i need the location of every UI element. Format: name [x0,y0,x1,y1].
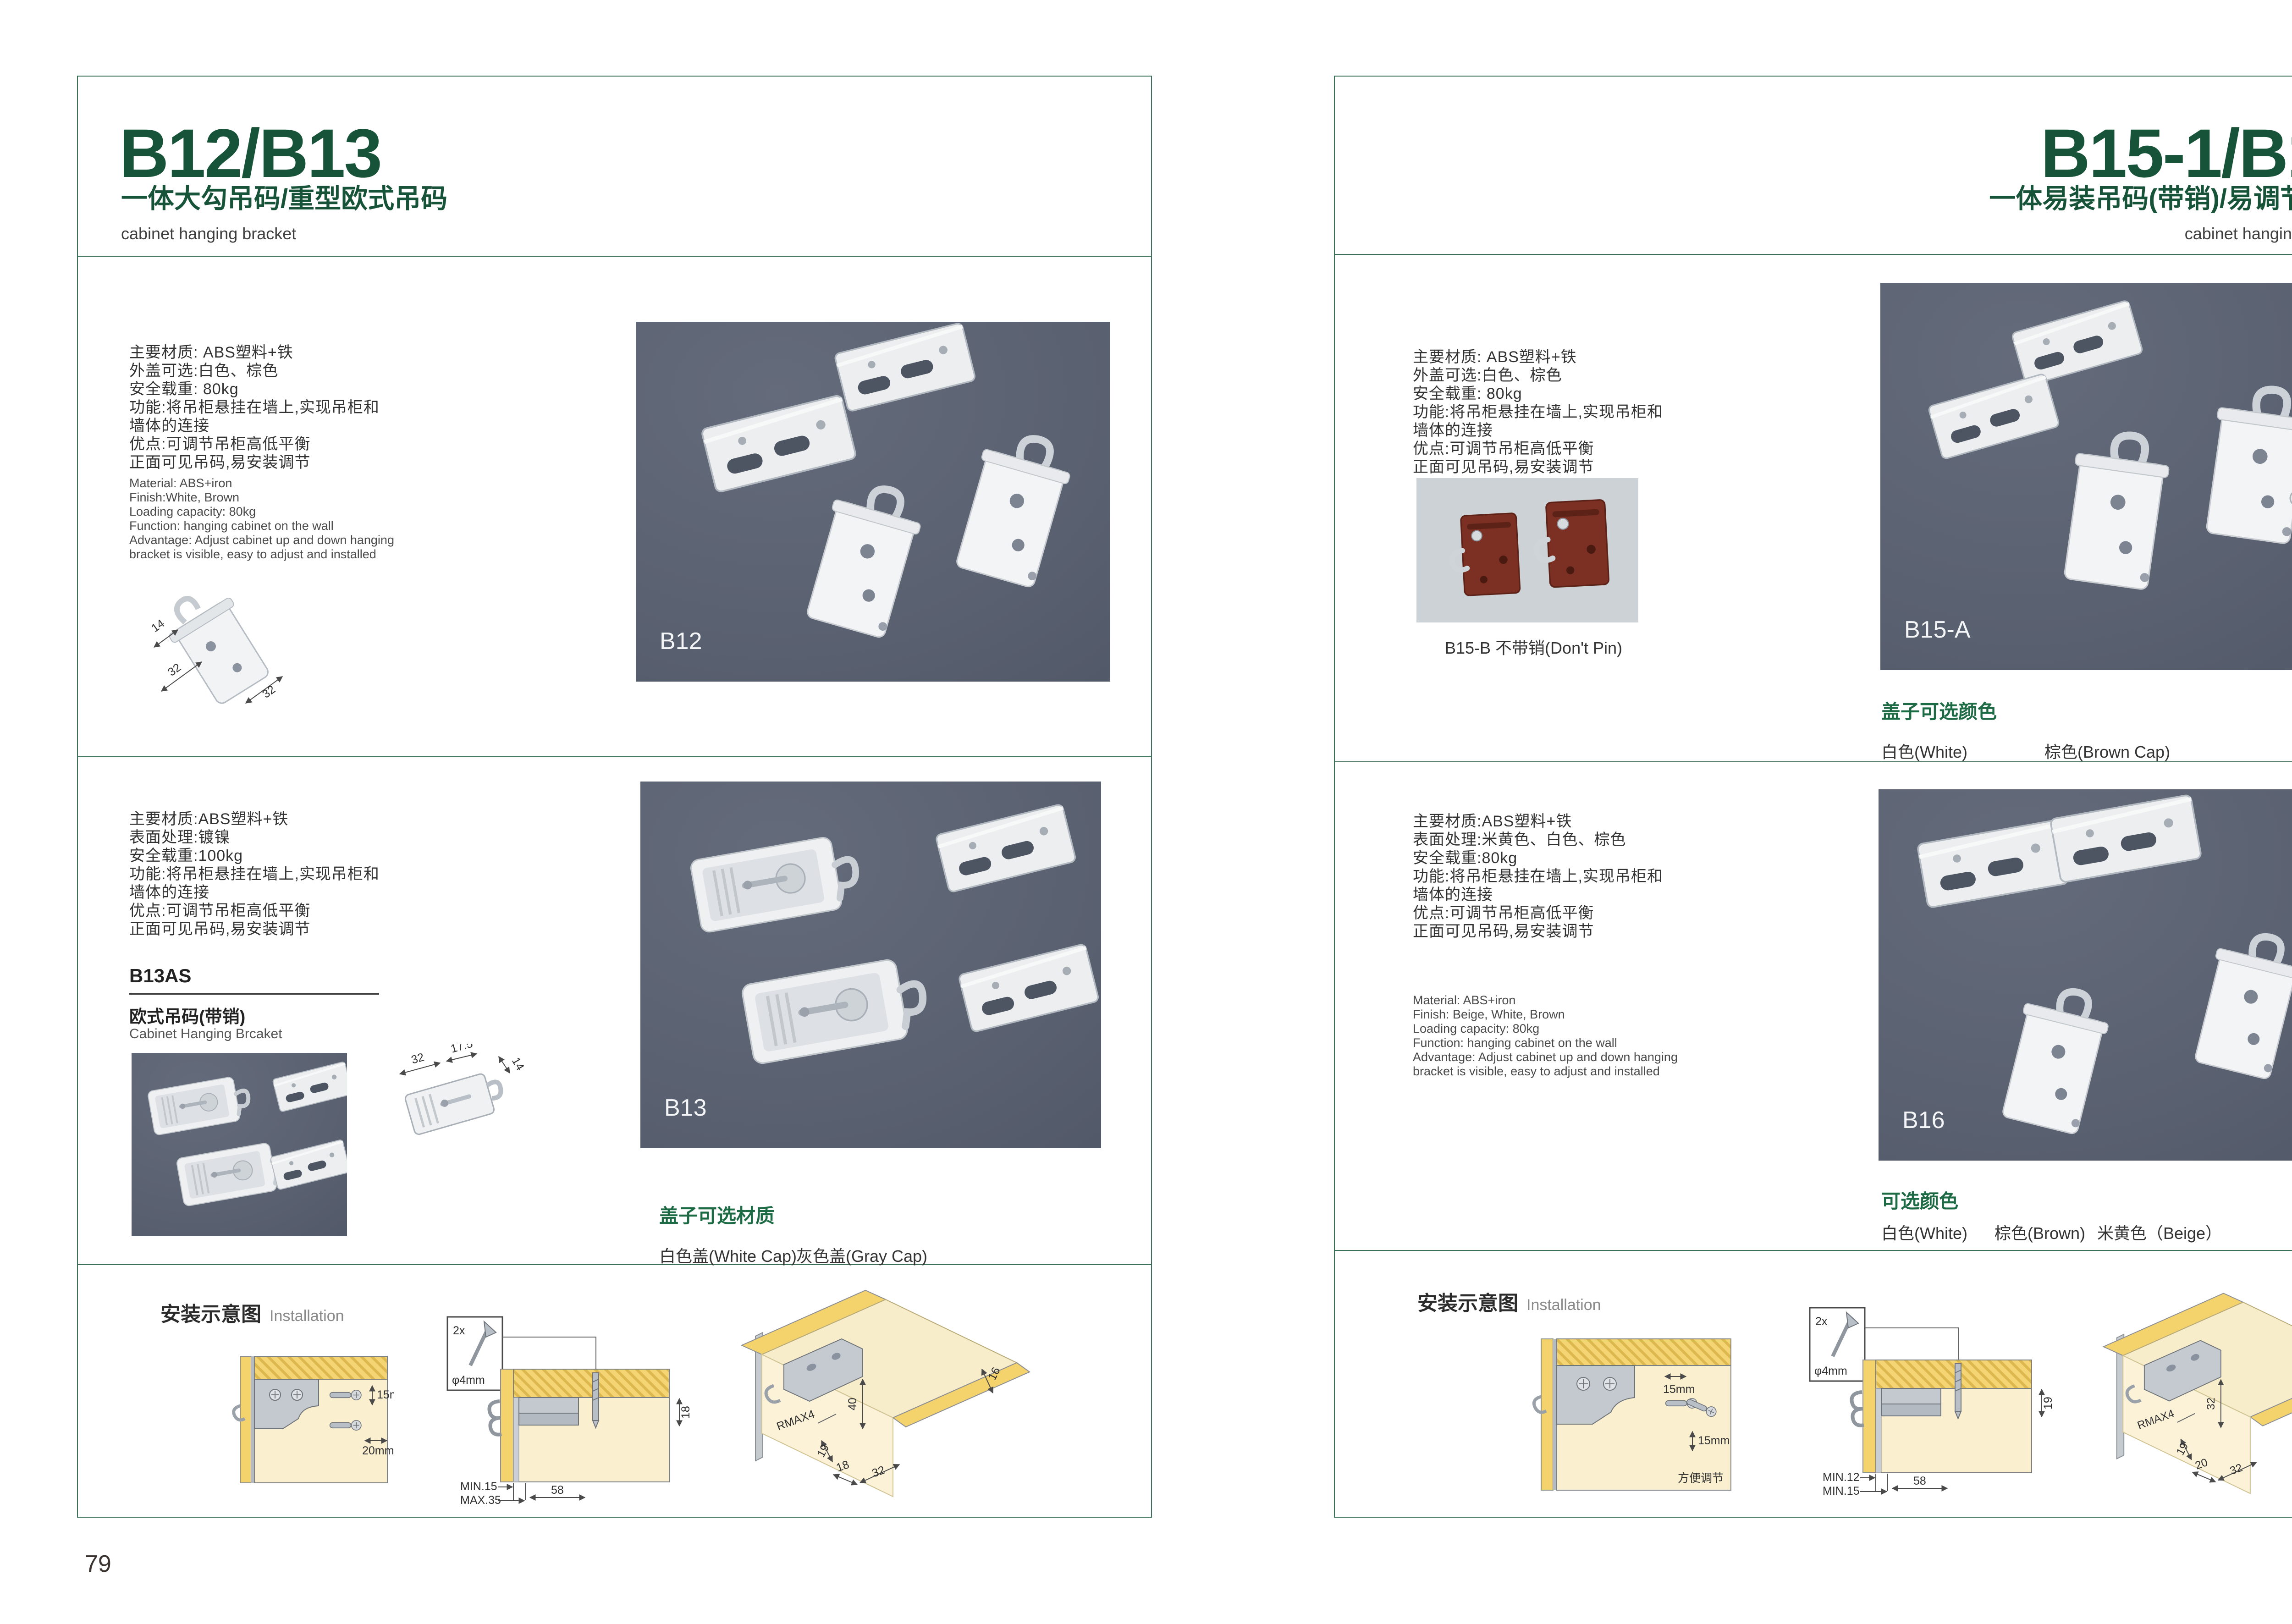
b13-product-art [640,782,1101,1148]
spec-line: 功能:将吊柜悬挂在墙上,实现吊柜和 [129,398,597,417]
spec-line: 正面可见吊码,易安装调节 [129,453,597,472]
spec-line: 表面处理:米黄色、白色、棕色 [1413,831,1871,849]
b13as-tech-drawing: 32 17.5 14 [385,1044,536,1158]
installation-title: 安装示意图Installation [1417,1287,1601,1316]
dim-label: MIN.15 [1823,1485,1860,1497]
spec-line: Advantage: Adjust cabinet up and down ha… [129,533,611,547]
b16-specs-en: Material: ABS+iron Finish: Beige, White,… [1413,993,1894,1079]
spec-line: 主要材质: ABS塑料+铁 [1413,348,1871,366]
spec-line: bracket is visible, easy to adjust and i… [129,547,611,562]
spec-line: 外盖可选:白色、棕色 [1413,366,1871,385]
bracket-icon [741,955,930,1064]
dim-label: 15mm [1698,1434,1730,1447]
dim-label: 18 [679,1406,692,1419]
page-subtitle: 一体易装吊码(带销)/易调节吊码 [1989,183,2292,215]
b13-specs-cn: 主要材质:ABS塑料+铁 表面处理:镀镍 安全载重:100kg 功能:将吊柜悬挂… [129,810,597,938]
page-number-left: 79 [85,1550,111,1578]
page-subtitle: 一体大勾吊码/重型欧式吊码 [121,183,447,215]
b12-product-art [636,322,1110,682]
model-name-en: Cabinet Hanging Brcaket [129,1026,282,1042]
installation-title-en: Installation [270,1307,344,1325]
bracket-icon [951,426,1077,589]
spec-line: 安全载重:80kg [1413,849,1871,867]
cap-color-title: 盖子可选颜色 [1881,696,1997,724]
b12-specs-cn: 主要材质: ABS塑料+铁 外盖可选:白色、棕色 安全载重: 80kg 功能:将… [129,343,597,472]
installation-diagram-section: 15mm 15mm 方便调节 [1527,1332,1738,1497]
spec-line: Material: ABS+iron [1413,993,1894,1007]
section-divider [78,756,1151,757]
dim-label: 20mm [362,1444,394,1457]
category-label: cabinet hanging bracket [2185,224,2292,243]
section-divider [78,256,1151,257]
spec-line: 主要材质:ABS塑料+铁 [129,810,597,828]
bracket-icon [176,1140,290,1207]
rail-icon [1928,374,2060,460]
installation-diagram-dims: 2x φ4mm 18 MIN.15 MAX.35 58 [445,1314,692,1511]
bracket-icon [2201,382,2292,545]
dim-label: MIN.12 [1823,1471,1860,1484]
dim-label: 32 [410,1051,425,1067]
rail-icon [701,395,856,493]
installation-title-cn: 安装示意图 [1417,1292,1518,1315]
spec-line: Loading capacity: 80kg [129,505,611,519]
dim-label: 19 [2042,1397,2055,1409]
bracket-icon [690,833,862,933]
dim-label: 58 [1913,1475,1926,1487]
spec-line: Advantage: Adjust cabinet up and down ha… [1413,1050,1894,1064]
spec-line: Finish: Beige, White, Brown [1413,1007,1894,1022]
rail-icon [1917,820,2068,908]
b15a-product-art [1880,283,2292,670]
cap-material-title: 盖子可选材质 [659,1200,775,1228]
screw-qty-label: 2x [453,1324,465,1337]
installation-diagram-section: 15mm 20mm [229,1351,394,1488]
spec-line: 主要材质:ABS塑料+铁 [1413,812,1871,831]
dim-label: 32 [165,661,183,679]
dim-label: 32 [260,683,278,701]
spec-line: Material: ABS+iron [129,476,611,490]
photo-label: B15-A [1904,616,1971,644]
spec-line: 优点:可调节吊柜高低平衡 [1413,904,1871,922]
bracket-icon [801,476,928,640]
photo-label: B16 [1902,1107,1945,1134]
cap-option-white: 白色(White) [1881,739,1967,763]
cap-option-white: 白色盖(White Cap) [659,1243,797,1267]
rail-icon [270,1140,347,1190]
rail-icon [834,323,976,412]
installation-diagram-perspective: 16 40 RMAX4 19 18 32 [720,1277,1031,1507]
spec-line: 外盖可选:白色、棕色 [129,362,597,380]
bracket-icon [147,1074,252,1135]
b12-dimension-sketch: 14 32 32 [138,578,303,730]
spec-line: 安全载重:100kg [129,847,597,865]
page-title: B12/B13 [119,119,381,187]
b15-specs-cn: 主要材质: ABS塑料+铁 外盖可选:白色、棕色 安全载重: 80kg 功能:将… [1413,348,1871,476]
spec-line: 安全载重: 80kg [1413,385,1871,403]
photo-label: B13 [664,1094,707,1122]
bracket-icon [2190,925,2292,1081]
spec-line: 功能:将吊柜悬挂在墙上,实现吊柜和 [1413,867,1871,886]
spec-line: Finish:White, Brown [129,490,611,505]
b13as-product-art [132,1053,347,1236]
b16-product-art [1879,789,2292,1161]
color-option-beige: 米黄色（Beige） [2097,1220,2222,1244]
spec-line: 正面可见吊码,易安装调节 [1413,458,1871,476]
model-name-cn: 欧式吊码(带销) [129,1002,245,1028]
b12-product-photo: B12 [636,322,1110,682]
page-right: B15-1/B16 一体易装吊码(带销)/易调节吊码 cabinet hangi… [1334,76,2292,1518]
spec-line: 主要材质: ABS塑料+铁 [129,343,597,362]
spec-line: Loading capacity: 80kg [1413,1022,1894,1036]
spec-line: 功能:将吊柜悬挂在墙上,实现吊柜和 [1413,403,1871,421]
spec-line: Function: hanging cabinet on the wall [129,519,611,533]
spec-line: 优点:可调节吊柜高低平衡 [129,435,597,453]
bracket-icon [2059,428,2173,590]
category-label: cabinet hanging bracket [121,224,296,243]
spec-line: 表面处理:镀镍 [129,828,597,847]
section-divider [1335,254,2292,255]
spec-line: 优点:可调节吊柜高低平衡 [1413,440,1871,458]
b13as-product-photo [132,1053,347,1236]
spec-line: bracket is visible, easy to adjust and i… [1413,1064,1894,1079]
bracket-icon [1449,513,1520,596]
rail-icon [2011,300,2143,386]
screw-qty-label: 2x [1815,1315,1828,1328]
section-divider [78,1264,1151,1265]
spec-line: Function: hanging cabinet on the wall [1413,1036,1894,1050]
note-label: 方便调节 [1678,1472,1724,1485]
dim-label: 40 [846,1398,859,1410]
bracket-icon [1534,500,1609,588]
model-code: B13AS [129,965,191,987]
b15b-product-art [1416,478,1638,622]
b13-product-photo: B13 [640,782,1101,1148]
photo-label: B12 [660,628,702,655]
dim-label: 17.5 [449,1044,474,1056]
spec-line: 正面可见吊码,易安装调节 [129,920,597,938]
dim-label: 14 [149,617,167,635]
bracket-icon [1997,980,2114,1136]
dim-label: 58 [551,1484,564,1497]
b12-specs-en: Material: ABS+iron Finish:White, Brown L… [129,476,611,562]
page-left: B12/B13 一体大勾吊码/重型欧式吊码 cabinet hanging br… [77,76,1152,1518]
rail-icon [959,944,1099,1032]
dim-label: 14 [509,1055,527,1073]
rail-icon [936,804,1076,892]
dim-label: 32 [2205,1398,2217,1410]
dim-label: MAX.35 [460,1494,501,1507]
b15a-product-photo: B15-A [1880,283,2292,670]
section-divider [1335,1250,2292,1251]
spec-line: 优点:可调节吊柜高低平衡 [129,902,597,920]
dim-label: 15mm [1663,1383,1695,1396]
installation-title: 安装示意图Installation [160,1298,344,1327]
spec-line: 墙体的连接 [1413,421,1871,440]
color-option-brown: 棕色(Brown) [1994,1220,2085,1244]
spec-line: 安全载重: 80kg [129,380,597,398]
b16-specs-cn: 主要材质:ABS塑料+铁 表面处理:米黄色、白色、棕色 安全载重:80kg 功能… [1413,812,1871,941]
spec-line: 功能:将吊柜悬挂在墙上,实现吊柜和 [129,865,597,883]
installation-diagram-perspective: 30 32 RMAX4 19 20 32 [2082,1277,2292,1507]
dim-label: MIN.15 [460,1480,497,1493]
dim-label: 15mm [377,1388,394,1401]
color-option-white: 白色(White) [1881,1220,1967,1244]
b15b-caption: B15-B 不带销(Don't Pin) [1445,635,1622,659]
b15b-product-photo [1416,478,1638,622]
screw-dia-label: φ4mm [452,1374,485,1387]
b16-product-photo: B16 [1879,789,2292,1161]
page-title: B15-1/B16 [2041,119,2292,187]
rail-icon [2050,795,2201,883]
spec-line: 墙体的连接 [129,883,597,902]
spec-line: 正面可见吊码,易安装调节 [1413,922,1871,941]
cap-option-gray: 灰色盖(Gray Cap) [796,1243,927,1267]
screw-dia-label: φ4mm [1814,1365,1847,1377]
color-options-title: 可选颜色 [1881,1186,1958,1214]
installation-title-en: Installation [1526,1296,1601,1314]
cap-option-brown: 棕色(Brown Cap) [2044,739,2170,763]
rail-icon [272,1062,347,1112]
installation-title-cn: 安装示意图 [160,1303,261,1326]
installation-diagram-dims: 2x φ4mm 19 MIN.12 MIN.15 58 [1807,1305,2055,1502]
spec-line: 墙体的连接 [129,417,597,435]
spec-line: 墙体的连接 [1413,886,1871,904]
model-underline [129,993,379,995]
